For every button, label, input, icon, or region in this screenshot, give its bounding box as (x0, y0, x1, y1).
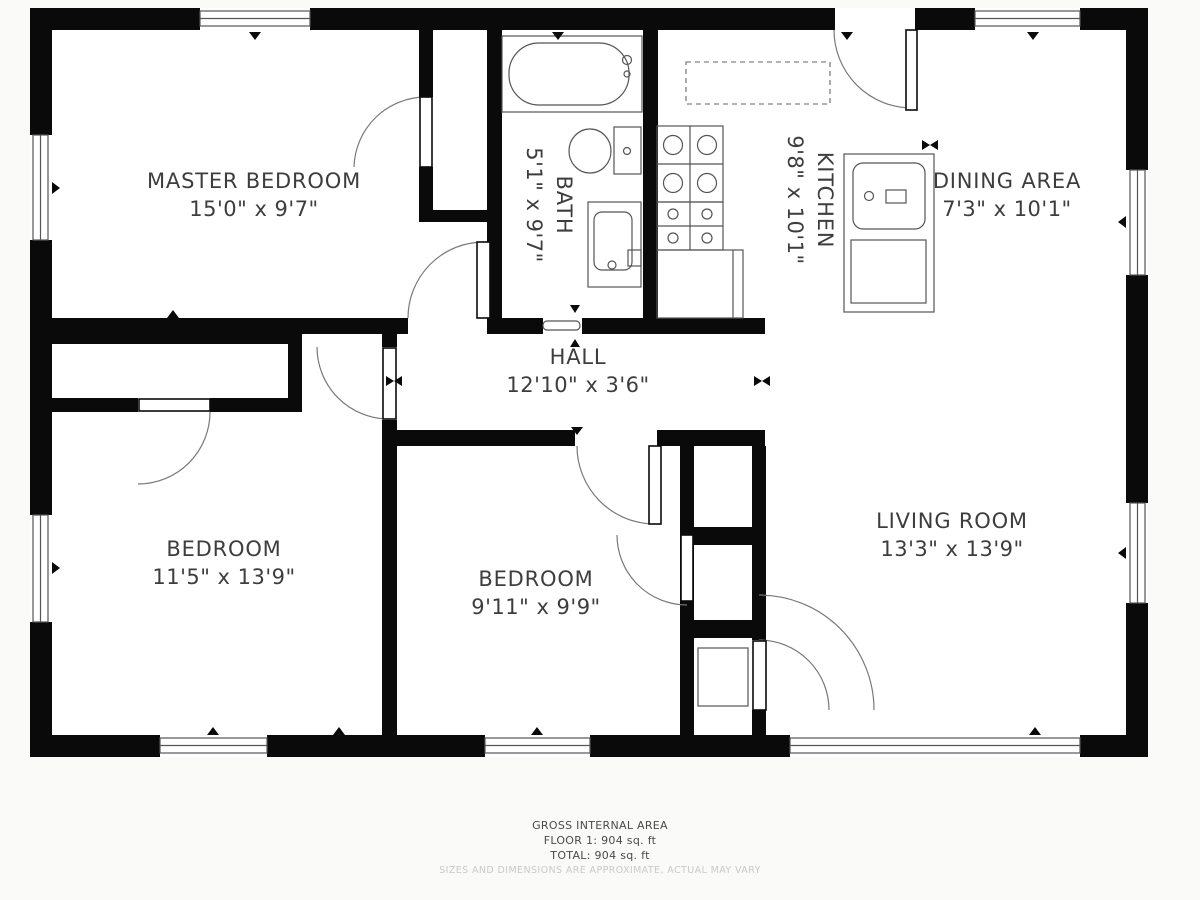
window-dining-top (975, 11, 1080, 26)
label-bedroom-2: BEDROOM (478, 567, 593, 591)
range-stove (657, 126, 723, 202)
plan-footer: GROSS INTERNAL AREA FLOOR 1: 904 sq. ft … (0, 818, 1200, 878)
dims-bath: 5'1" x 9'7" (522, 147, 546, 263)
label-bedroom-1: BEDROOM (166, 537, 281, 561)
disclaimer-text: SIZES AND DIMENSIONS ARE APPROXIMATE, AC… (0, 864, 1200, 878)
window-bedroom2-bottom (485, 738, 590, 753)
window-dining-right (1130, 170, 1145, 275)
floor1-area-value: FLOOR 1: 904 sq. ft (0, 833, 1200, 848)
dims-living-room: 13'3" x 13'9" (880, 537, 1023, 561)
label-living-room: LIVING ROOM (876, 509, 1028, 533)
window-master-left (33, 135, 48, 240)
dims-kitchen: 9'8" x 10'1" (783, 135, 807, 264)
dims-bedroom-2: 9'11" x 9'9" (471, 595, 600, 619)
label-hall: HALL (550, 345, 607, 369)
window-living-right (1130, 503, 1145, 603)
label-master-bedroom: MASTER BEDROOM (147, 169, 361, 193)
label-kitchen: KITCHEN (813, 152, 837, 249)
floor-plan-svg: MASTER BEDROOM 15'0" x 9'7" BATH 5'1" x … (0, 0, 1200, 795)
dims-master-bedroom: 15'0" x 9'7" (189, 197, 318, 221)
window-bedroom-bottom (160, 738, 267, 753)
dims-bedroom-1: 11'5" x 13'9" (152, 565, 295, 589)
window-living-bottom (790, 738, 1080, 753)
dims-hall: 12'10" x 3'6" (506, 373, 649, 397)
window-master-top (200, 11, 310, 26)
dims-dining-area: 7'3" x 10'1" (942, 197, 1071, 221)
gross-internal-area-label: GROSS INTERNAL AREA (0, 818, 1200, 833)
floor-plan: MASTER BEDROOM 15'0" x 9'7" BATH 5'1" x … (0, 0, 1200, 795)
label-dining-area: DINING AREA (933, 169, 1081, 193)
total-area-value: TOTAL: 904 sq. ft (0, 848, 1200, 863)
label-bath: BATH (552, 176, 576, 235)
window-bedroom-left (33, 515, 48, 622)
